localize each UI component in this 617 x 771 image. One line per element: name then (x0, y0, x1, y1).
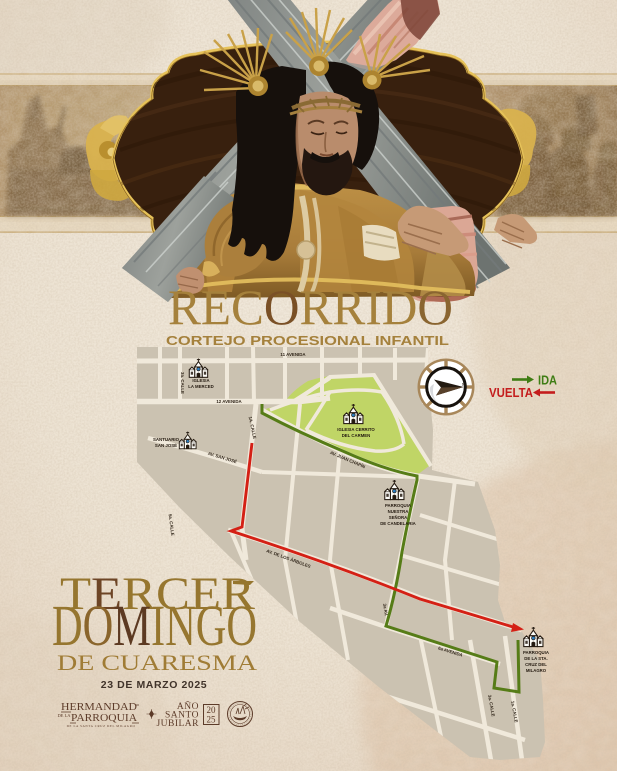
svg-text:CRUZ DEL: CRUZ DEL (525, 662, 547, 667)
svg-text:DE LA: DE LA (57, 713, 71, 718)
svg-text:11 AVENIDA: 11 AVENIDA (280, 352, 306, 357)
svg-text:CORTEJO PROCESIONAL INFANTIL: CORTEJO PROCESIONAL INFANTIL (166, 334, 449, 348)
svg-text:LA MERCED: LA MERCED (188, 384, 213, 389)
svg-text:12 AVENIDA: 12 AVENIDA (216, 399, 242, 404)
svg-text:PARROQUIA: PARROQUIA (71, 712, 137, 724)
svg-text:PARROQUIA: PARROQUIA (523, 650, 549, 655)
svg-text:IDA: IDA (538, 374, 557, 388)
svg-text:NUESTRA: NUESTRA (388, 509, 409, 514)
svg-text:20: 20 (207, 705, 217, 715)
svg-text:DE LA STA.: DE LA STA. (524, 656, 547, 661)
svg-text:SANTUARIO: SANTUARIO (153, 437, 180, 442)
svg-text:IGLESIA CERRITO: IGLESIA CERRITO (337, 427, 375, 432)
svg-text:DE LA SANTA CRUZ DEL MILAGRO: DE LA SANTA CRUZ DEL MILAGRO (67, 724, 136, 728)
svg-text:23 DE MARZO 2025: 23 DE MARZO 2025 (101, 679, 207, 691)
svg-text:DOMINGO: DOMINGO (52, 593, 257, 658)
svg-text:IGLESIA: IGLESIA (192, 378, 209, 383)
svg-text:MILAGRO: MILAGRO (526, 668, 547, 673)
svg-text:VUELTA: VUELTA (489, 385, 534, 400)
svg-text:DEL CARMEN: DEL CARMEN (342, 433, 371, 438)
svg-text:JUBILAR: JUBILAR (156, 719, 199, 729)
svg-text:DE CANDELARIA: DE CANDELARIA (380, 521, 416, 526)
svg-text:PARROQUIA: PARROQUIA (385, 503, 411, 508)
svg-text:SEÑORA: SEÑORA (389, 515, 407, 520)
svg-text:N: N (462, 382, 465, 387)
svg-text:SAN JOSÉ: SAN JOSÉ (155, 443, 177, 448)
svg-text:3a. CALLE: 3a. CALLE (180, 372, 185, 394)
svg-text:25: 25 (207, 715, 217, 725)
svg-text:DE CUARESMA: DE CUARESMA (57, 650, 257, 675)
svg-text:RECORRIDO: RECORRIDO (168, 279, 453, 335)
